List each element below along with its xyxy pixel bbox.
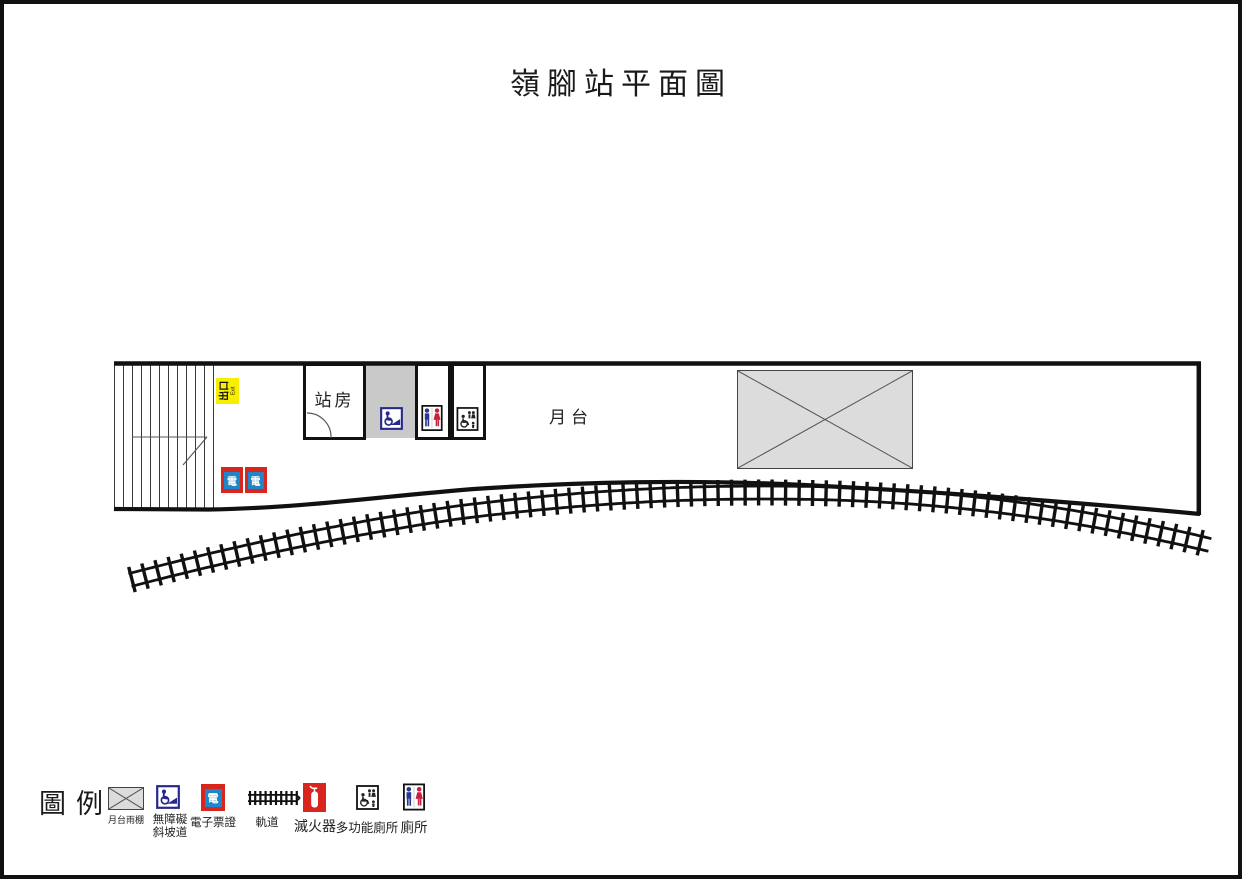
exit-sign: 出口 Exit [216,378,239,404]
legend-label-track: 軌道 [249,814,285,830]
page-title: 嶺腳站平面圖 [4,59,1238,103]
platform-bottom-edge [114,482,1200,514]
toilet-icon [421,405,443,431]
station-house-room: 站房 [303,363,366,440]
platform-canopy [737,370,913,469]
card-reader-icon: 電 [245,467,267,493]
platform-canopy-icon [108,787,144,810]
legend-label-multi-toilet: 多功能廁所 [332,817,402,836]
track-icon [248,791,300,805]
access-ramp-area [114,365,214,508]
multi-function-toilet-icon [456,407,479,431]
e-ticket-icon: 電 [201,784,225,811]
canopy-cross-lines [738,371,912,468]
railway-track [128,480,1211,593]
station-floor-plan: 嶺腳站平面圖 站房 出口 Exit 電 電 月台 [0,0,1242,879]
station-house-label: 站房 [306,386,363,411]
wheelchair-ramp-icon [156,785,180,809]
legend-label-canopy: 月台雨棚 [98,813,154,826]
fire-extinguisher-icon [303,783,326,812]
multi-function-toilet-icon [356,785,379,810]
card-reader-icon: 電 [221,467,243,493]
legend-label-eticket: 電子票證 [187,814,239,830]
wheelchair-ramp-icon [380,407,403,430]
toilet-icon [403,783,425,811]
platform-label: 月台 [549,403,629,428]
legend-label-toilet: 廁所 [394,816,434,836]
exit-sign-text: 出口 Exit [220,381,236,401]
canopy-cross-lines [109,788,143,809]
